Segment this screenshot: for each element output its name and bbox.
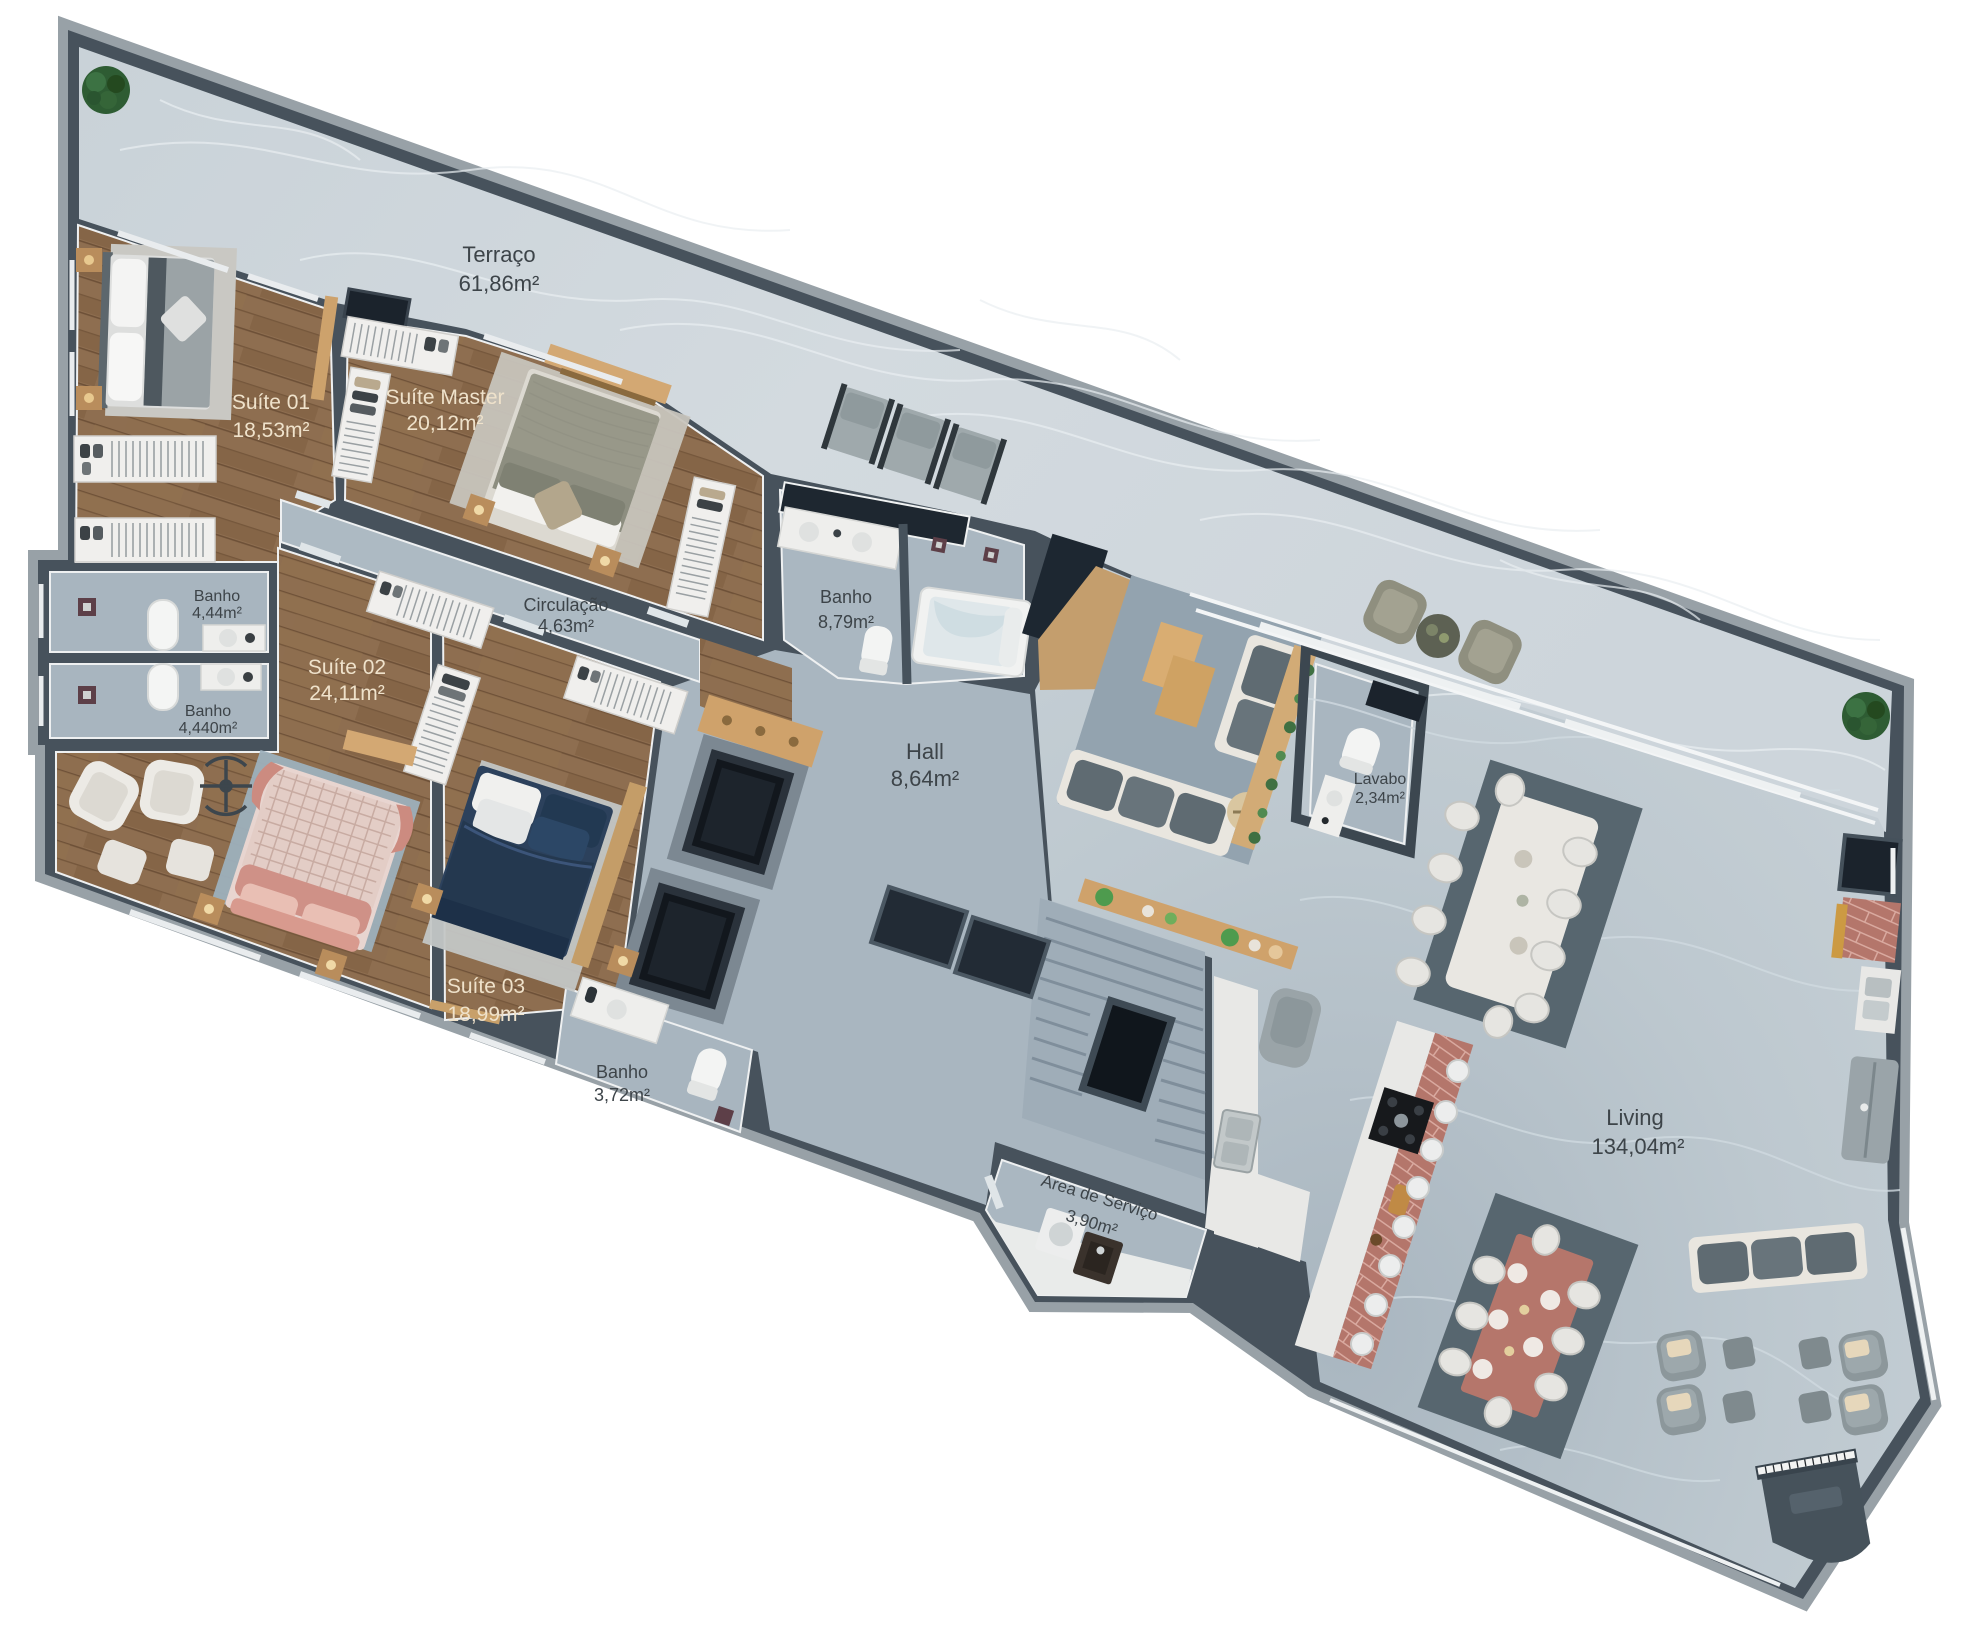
svg-text:4,44m²: 4,44m² xyxy=(192,605,242,622)
svg-text:18,99m²: 18,99m² xyxy=(447,1003,524,1026)
svg-text:Banho: Banho xyxy=(596,1062,648,1082)
svg-text:Hall: Hall xyxy=(906,739,944,764)
svg-text:Suíte 01: Suíte 01 xyxy=(232,391,310,414)
svg-text:Circulação: Circulação xyxy=(523,595,608,615)
svg-text:Banho: Banho xyxy=(820,587,872,607)
svg-text:Banho: Banho xyxy=(194,588,240,605)
svg-text:4,440m²: 4,440m² xyxy=(179,720,238,737)
svg-text:Suíte Master: Suíte Master xyxy=(385,386,504,409)
svg-text:8,79m²: 8,79m² xyxy=(818,612,874,632)
svg-text:61,86m²: 61,86m² xyxy=(459,271,540,296)
svg-text:Living: Living xyxy=(1606,1105,1663,1130)
svg-text:Suíte 03: Suíte 03 xyxy=(447,975,525,998)
svg-text:134,04m²: 134,04m² xyxy=(1592,1134,1685,1159)
svg-text:Suíte 02: Suíte 02 xyxy=(308,656,386,679)
svg-text:Terraço: Terraço xyxy=(462,242,535,267)
svg-text:Lavabo: Lavabo xyxy=(1354,771,1407,788)
svg-text:2,34m²: 2,34m² xyxy=(1355,790,1405,807)
svg-text:20,12m²: 20,12m² xyxy=(406,412,483,435)
svg-text:4,63m²: 4,63m² xyxy=(538,616,594,636)
svg-text:18,53m²: 18,53m² xyxy=(232,419,309,442)
svg-text:8,64m²: 8,64m² xyxy=(891,766,959,791)
svg-text:Banho: Banho xyxy=(185,703,231,720)
svg-text:24,11m²: 24,11m² xyxy=(309,682,384,705)
svg-text:3,72m²: 3,72m² xyxy=(594,1085,650,1105)
